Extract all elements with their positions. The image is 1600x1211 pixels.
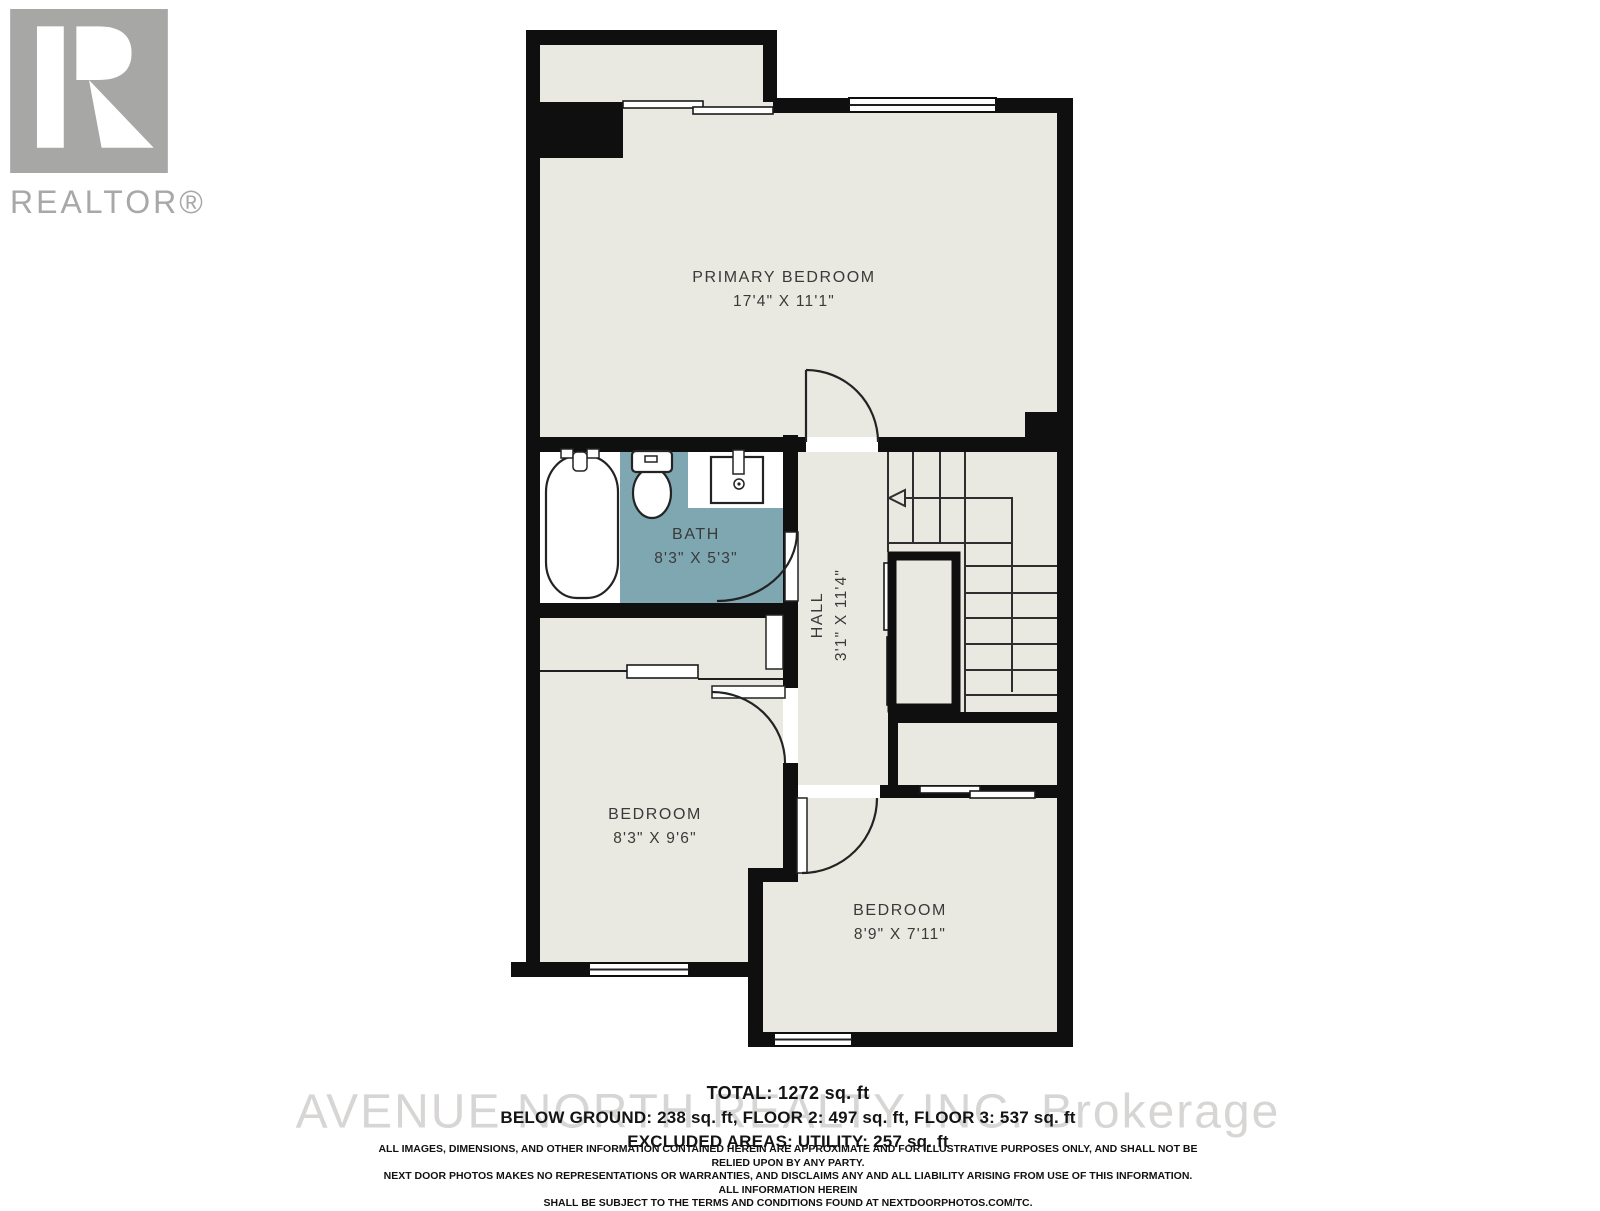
room-label-bedroom-right: BEDROOM 8'9" X 7'11" xyxy=(853,902,947,944)
floor-areas-line: BELOW GROUND: 238 sq. ft, FLOOR 2: 497 s… xyxy=(500,1108,1075,1128)
window-icon xyxy=(774,1033,852,1046)
sliding-window-icon xyxy=(627,665,698,678)
room-dims: 3'1" X 11'4" xyxy=(833,569,851,661)
door-leaf xyxy=(797,798,807,873)
room-label-hall: HALL 3'1" X 11'4" xyxy=(809,569,851,661)
disclaimer-line: NEXT DOOR PHOTOS MAKES NO REPRESENTATION… xyxy=(378,1170,1198,1197)
realtor-r-icon xyxy=(10,9,168,173)
room-dims: 17'4" X 11'1" xyxy=(692,293,875,311)
realtor-wordmark: REALTOR® xyxy=(10,184,206,221)
room-name: BEDROOM xyxy=(608,806,702,824)
window-icon xyxy=(589,963,689,976)
area-summary: TOTAL: 1272 sq. ft BELOW GROUND: 238 sq.… xyxy=(500,1083,1075,1152)
closet xyxy=(892,556,956,708)
room-name: HALL xyxy=(809,569,827,661)
disclaimer-line: SHALL BE SUBJECT TO THE TERMS AND CONDIT… xyxy=(378,1197,1198,1211)
disclaimer: ALL IMAGES, DIMENSIONS, AND OTHER INFORM… xyxy=(378,1143,1198,1211)
disclaimer-line: ALL IMAGES, DIMENSIONS, AND OTHER INFORM… xyxy=(378,1143,1198,1170)
floor-plan-page: REALTOR® AVENUE NORTH REALTY INC. Broker… xyxy=(0,0,1600,1200)
sink-icon xyxy=(711,450,763,503)
room-label-bedroom-left: BEDROOM 8'3" X 9'6" xyxy=(608,806,702,848)
toilet-icon xyxy=(632,451,672,518)
sliding-door-icon xyxy=(623,101,703,108)
room-dims: 8'3" X 9'6" xyxy=(608,830,702,848)
bathtub-icon xyxy=(546,449,618,598)
window-icon xyxy=(849,98,996,112)
sliding-door-icon xyxy=(970,791,1035,798)
room-label-bath: BATH 8'3" X 5'3" xyxy=(654,526,738,568)
room-name: PRIMARY BEDROOM xyxy=(692,269,875,287)
room-label-primary-bedroom: PRIMARY BEDROOM 17'4" X 11'1" xyxy=(692,269,875,311)
total-area: TOTAL: 1272 sq. ft xyxy=(500,1083,1075,1104)
room-name: BEDROOM xyxy=(853,902,947,920)
room-dims: 8'9" X 7'11" xyxy=(853,926,947,944)
floor-plan-drawing xyxy=(0,0,1600,1200)
linen-closet-door xyxy=(766,615,783,669)
room-name: BATH xyxy=(654,526,738,544)
room-dims: 8'3" X 5'3" xyxy=(654,550,738,568)
realtor-logo: REALTOR® xyxy=(10,9,206,221)
sliding-door-icon xyxy=(693,107,773,114)
